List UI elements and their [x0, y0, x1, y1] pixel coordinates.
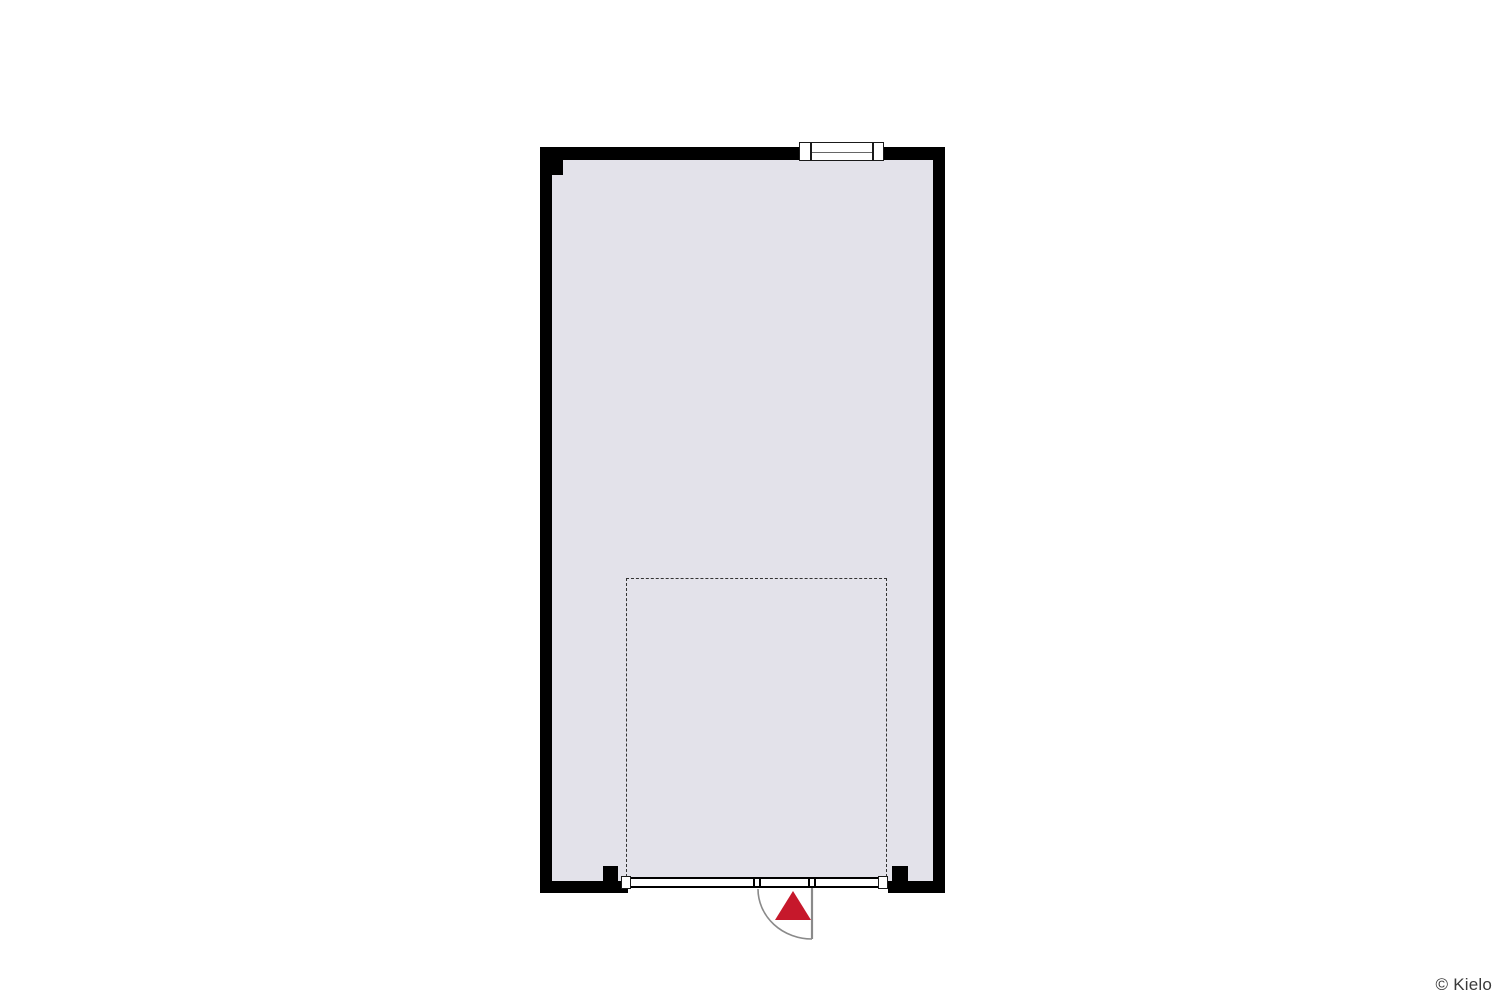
copyright-text: © Kielo [1436, 975, 1492, 995]
wall-right [933, 147, 945, 893]
floor-plan-canvas: © Kielo [0, 0, 1500, 1000]
wall-bottom-left [540, 881, 628, 893]
wall-top [540, 147, 945, 160]
door-swing-icon [750, 882, 820, 944]
glazing-endcap-right [878, 876, 888, 889]
wall-pier-left [603, 866, 618, 882]
wall-bottom-right [888, 881, 945, 893]
glazing-endcap-left [621, 876, 631, 889]
wall-left [540, 147, 552, 893]
entrance-arrow-icon [775, 891, 811, 920]
window-mullion-icon [872, 143, 874, 160]
wall-pier-right [892, 866, 908, 882]
dashed-area-outline [626, 578, 887, 877]
wall-corner-notch [552, 159, 563, 175]
window-icon [799, 142, 884, 161]
window-glass-line [812, 152, 872, 153]
